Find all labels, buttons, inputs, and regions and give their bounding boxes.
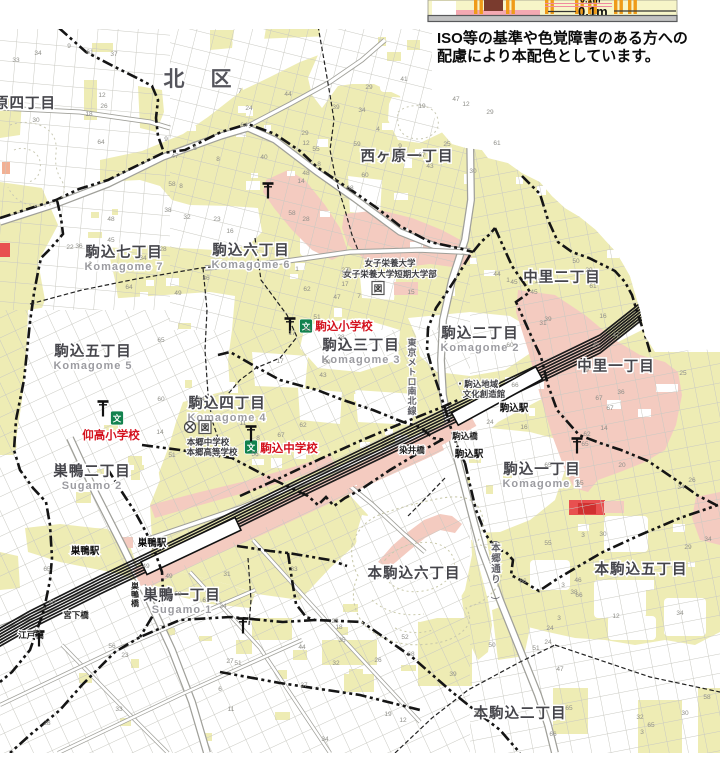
- svg-text:12: 12: [612, 613, 620, 620]
- svg-text:65: 65: [157, 337, 165, 344]
- svg-text:66: 66: [519, 578, 527, 585]
- svg-text:京: 京: [407, 347, 416, 358]
- svg-text:8: 8: [317, 161, 321, 168]
- svg-text:16: 16: [520, 424, 528, 431]
- svg-text:29: 29: [684, 544, 692, 551]
- svg-text:60: 60: [157, 396, 165, 403]
- svg-text:9: 9: [67, 43, 71, 50]
- svg-text:50: 50: [488, 642, 496, 649]
- svg-text:29: 29: [486, 109, 494, 116]
- svg-text:8: 8: [179, 183, 183, 190]
- svg-text:62: 62: [299, 422, 307, 429]
- svg-text:本郷高等学校: 本郷高等学校: [186, 447, 238, 457]
- svg-text:ISO等の基準や色覚障害のある方への: ISO等の基準や色覚障害のある方への: [437, 29, 688, 47]
- svg-text:65: 65: [581, 441, 589, 448]
- svg-text:60: 60: [506, 342, 514, 349]
- svg-text:Komagome 3: Komagome 3: [321, 354, 400, 366]
- svg-text:55: 55: [312, 146, 320, 153]
- svg-text:36: 36: [617, 389, 625, 396]
- svg-text:58: 58: [703, 694, 711, 701]
- svg-text:52: 52: [401, 634, 409, 641]
- svg-text:(: (: [491, 541, 501, 544]
- svg-text:24: 24: [245, 105, 253, 112]
- svg-text:文化創造館: 文化創造館: [463, 389, 506, 399]
- svg-text:47: 47: [171, 153, 179, 160]
- svg-text:12: 12: [302, 140, 310, 147]
- svg-text:33: 33: [115, 706, 123, 713]
- svg-text:19: 19: [418, 103, 426, 110]
- svg-text:9: 9: [398, 143, 402, 150]
- svg-text:50: 50: [572, 258, 580, 265]
- svg-text:30: 30: [469, 168, 477, 175]
- svg-text:61: 61: [86, 49, 94, 56]
- svg-text:39: 39: [332, 104, 340, 111]
- svg-text:45: 45: [530, 289, 538, 296]
- svg-text:25: 25: [443, 141, 451, 148]
- svg-text:29: 29: [301, 130, 309, 137]
- svg-text:29: 29: [365, 84, 373, 91]
- svg-text:43: 43: [319, 372, 327, 379]
- svg-text:45: 45: [510, 279, 518, 286]
- svg-text:12: 12: [98, 92, 106, 99]
- svg-text:30: 30: [32, 117, 40, 124]
- svg-text:61: 61: [493, 140, 501, 147]
- svg-text:駒込三丁目: 駒込三丁目: [322, 336, 400, 354]
- svg-text:17: 17: [276, 358, 284, 365]
- svg-text:15: 15: [407, 289, 415, 296]
- svg-text:0.1m: 0.1m: [580, 0, 601, 5]
- svg-text:駒込中学校: 駒込中学校: [260, 441, 318, 455]
- svg-text:巣鴨二丁目: 巣鴨二丁目: [52, 462, 131, 480]
- svg-text:49: 49: [174, 290, 182, 297]
- svg-text:西ヶ原一丁目: 西ヶ原一丁目: [361, 148, 454, 165]
- svg-text:68: 68: [346, 185, 354, 192]
- svg-text:線: 線: [407, 405, 416, 416]
- svg-text:東: 東: [407, 337, 416, 348]
- svg-text:65: 65: [544, 462, 552, 469]
- svg-text:65: 65: [43, 566, 51, 573]
- svg-text:34: 34: [677, 484, 685, 491]
- svg-text:3: 3: [561, 582, 565, 589]
- svg-text:本: 本: [491, 542, 501, 554]
- svg-text:48: 48: [107, 216, 115, 223]
- svg-text:62: 62: [583, 431, 591, 438]
- svg-text:24: 24: [546, 625, 554, 632]
- svg-text:・駒込地域: ・駒込地域: [456, 379, 499, 389]
- svg-text:34: 34: [321, 736, 329, 743]
- svg-text:61: 61: [202, 597, 210, 604]
- svg-text:仰高小学校: 仰高小学校: [82, 428, 140, 442]
- svg-text:47: 47: [612, 332, 620, 339]
- svg-text:2: 2: [88, 261, 92, 268]
- svg-text:16: 16: [599, 313, 607, 320]
- svg-text:46: 46: [574, 577, 582, 584]
- svg-text:65: 65: [647, 722, 655, 729]
- svg-text:51: 51: [313, 314, 321, 321]
- svg-text:29: 29: [585, 267, 593, 274]
- svg-text:64: 64: [240, 122, 248, 129]
- svg-text:原四丁目: 原四丁目: [0, 95, 56, 112]
- svg-text:7: 7: [238, 88, 242, 95]
- svg-text:14: 14: [600, 425, 608, 432]
- svg-text:本郷中学校: 本郷中学校: [187, 437, 230, 447]
- svg-text:通: 通: [491, 564, 501, 575]
- svg-text:47: 47: [333, 294, 341, 301]
- svg-text:60: 60: [361, 172, 369, 179]
- svg-text:64: 64: [125, 284, 133, 291]
- svg-text:12: 12: [399, 717, 407, 724]
- svg-text:59: 59: [353, 141, 361, 148]
- svg-text:駒込駅: 駒込駅: [454, 448, 484, 460]
- svg-text:駒込二丁目: 駒込二丁目: [441, 324, 519, 342]
- svg-text:区: 区: [211, 68, 232, 91]
- svg-text:本駒込六丁目: 本駒込六丁目: [368, 564, 461, 582]
- svg-text:12: 12: [462, 101, 470, 108]
- svg-text:56: 56: [108, 643, 116, 650]
- svg-text:36: 36: [75, 243, 83, 250]
- svg-text:Komagome 5: Komagome 5: [53, 360, 132, 372]
- svg-text:本駒込五丁目: 本駒込五丁目: [595, 560, 688, 578]
- svg-text:本駒込二丁目: 本駒込二丁目: [474, 704, 567, 722]
- svg-text:6: 6: [218, 686, 222, 693]
- svg-text:9: 9: [585, 367, 589, 374]
- svg-text:51: 51: [168, 452, 176, 459]
- svg-text:染井橋: 染井橋: [398, 445, 425, 455]
- svg-text:31: 31: [223, 571, 231, 578]
- svg-text:58: 58: [288, 210, 296, 217]
- svg-text:6: 6: [193, 145, 197, 152]
- svg-text:34: 34: [197, 396, 205, 403]
- svg-text:巣: 巣: [130, 581, 139, 591]
- svg-text:4: 4: [376, 126, 380, 133]
- svg-text:43: 43: [426, 163, 434, 170]
- svg-text:9: 9: [164, 136, 168, 143]
- svg-text:62: 62: [303, 286, 311, 293]
- svg-text:3: 3: [581, 532, 585, 539]
- svg-text:45: 45: [107, 237, 115, 244]
- svg-text:北: 北: [164, 68, 185, 91]
- svg-text:8: 8: [256, 435, 260, 442]
- svg-text:43: 43: [33, 628, 41, 635]
- svg-text:配慮により本配色としています。: 配慮により本配色としています。: [437, 47, 660, 65]
- svg-text:メ: メ: [407, 357, 416, 367]
- svg-text:38: 38: [164, 207, 172, 214]
- svg-text:18: 18: [85, 111, 93, 118]
- svg-text:文: 文: [113, 413, 122, 423]
- svg-text:59: 59: [323, 359, 331, 366]
- svg-text:11: 11: [228, 706, 235, 713]
- svg-text:33: 33: [341, 272, 349, 279]
- svg-text:16: 16: [226, 228, 234, 235]
- svg-text:4: 4: [401, 151, 405, 158]
- svg-text:41: 41: [400, 76, 408, 83]
- svg-text:駒込六丁目: 駒込六丁目: [212, 241, 290, 259]
- svg-text:32: 32: [183, 214, 191, 221]
- svg-text:7: 7: [159, 625, 163, 632]
- svg-text:14: 14: [297, 178, 305, 185]
- svg-text:67: 67: [277, 432, 285, 439]
- svg-text:北: 北: [407, 395, 416, 406]
- svg-text:女子栄養大学: 女子栄養大学: [364, 258, 416, 268]
- svg-text:68: 68: [407, 651, 415, 658]
- svg-text:26: 26: [100, 103, 108, 110]
- svg-text:55: 55: [544, 540, 552, 547]
- svg-text:44: 44: [493, 271, 501, 278]
- svg-text:47: 47: [556, 666, 564, 673]
- svg-text:40: 40: [260, 154, 268, 161]
- svg-text:橋: 橋: [131, 598, 140, 608]
- svg-text:39: 39: [449, 671, 457, 678]
- svg-text:中里一丁目: 中里一丁目: [577, 357, 655, 375]
- svg-text:34: 34: [676, 610, 684, 617]
- svg-text:66: 66: [575, 592, 583, 599]
- svg-text:37: 37: [300, 682, 308, 689]
- svg-text:): ): [491, 597, 501, 600]
- svg-text:33: 33: [290, 566, 298, 573]
- svg-text:1: 1: [506, 277, 510, 284]
- svg-text:32: 32: [636, 714, 644, 721]
- svg-text:11: 11: [240, 420, 247, 427]
- svg-text:67: 67: [595, 395, 603, 402]
- svg-text:40: 40: [48, 599, 56, 606]
- svg-text:37: 37: [110, 51, 118, 58]
- svg-text:34: 34: [704, 536, 712, 543]
- svg-text:宮下橋: 宮下橋: [63, 610, 89, 620]
- svg-text:18: 18: [335, 624, 343, 631]
- svg-text:26: 26: [688, 477, 696, 484]
- svg-text:駒込小学校: 駒込小学校: [315, 319, 373, 333]
- svg-text:駒込駅: 駒込駅: [499, 402, 529, 414]
- svg-text:17: 17: [341, 281, 349, 288]
- svg-text:図: 図: [374, 283, 383, 293]
- svg-text:28: 28: [337, 334, 345, 341]
- svg-text:14: 14: [156, 429, 164, 436]
- svg-text:28: 28: [302, 216, 310, 223]
- svg-text:61: 61: [304, 326, 312, 333]
- svg-text:58: 58: [174, 591, 182, 598]
- svg-text:33: 33: [12, 57, 20, 64]
- svg-text:30: 30: [599, 531, 607, 538]
- svg-text:47: 47: [452, 96, 460, 103]
- svg-text:34: 34: [139, 255, 147, 262]
- svg-text:駒込七丁目: 駒込七丁目: [85, 243, 163, 261]
- svg-text:1: 1: [295, 266, 299, 273]
- svg-text:30: 30: [681, 710, 689, 717]
- svg-text:駒込橋: 駒込橋: [451, 431, 478, 441]
- svg-text:鴨: 鴨: [131, 590, 139, 600]
- svg-text:図: 図: [201, 422, 210, 432]
- svg-text:り: り: [491, 575, 501, 586]
- svg-text:23: 23: [121, 652, 129, 659]
- svg-text:20: 20: [591, 342, 599, 349]
- svg-text:女子栄養大学短期大学部: 女子栄養大学短期大学部: [343, 269, 437, 279]
- svg-text:19: 19: [384, 711, 392, 718]
- svg-text:3: 3: [557, 615, 561, 622]
- svg-text:Komagome 7: Komagome 7: [84, 261, 163, 273]
- svg-text:66: 66: [511, 382, 519, 389]
- svg-text:49: 49: [142, 563, 150, 570]
- svg-text:Sugamo 1: Sugamo 1: [152, 604, 213, 616]
- svg-text:17: 17: [288, 330, 296, 337]
- svg-text:23: 23: [213, 216, 221, 223]
- svg-text:58: 58: [168, 181, 176, 188]
- svg-text:3: 3: [640, 729, 644, 736]
- svg-text:67: 67: [418, 152, 426, 159]
- svg-text:44: 44: [284, 91, 292, 98]
- svg-text:65: 65: [576, 480, 584, 487]
- svg-text:51: 51: [532, 645, 540, 652]
- svg-text:8: 8: [216, 156, 220, 163]
- svg-text:48: 48: [302, 170, 310, 177]
- svg-text:巣鴨駅: 巣鴨駅: [70, 545, 100, 557]
- svg-text:36: 36: [202, 275, 210, 282]
- svg-text:28: 28: [159, 246, 167, 253]
- svg-text:39: 39: [544, 316, 552, 323]
- svg-text:64: 64: [475, 710, 483, 717]
- svg-text:22: 22: [66, 244, 74, 251]
- svg-text:35: 35: [338, 637, 346, 644]
- svg-text:巣鴨駅: 巣鴨駅: [137, 537, 167, 549]
- svg-text:Komagome 6: Komagome 6: [211, 259, 290, 271]
- svg-text:ト: ト: [407, 367, 416, 377]
- svg-text:27: 27: [226, 658, 234, 665]
- svg-text:南: 南: [407, 386, 416, 397]
- svg-text:32: 32: [332, 660, 340, 667]
- svg-text:61: 61: [589, 283, 597, 290]
- svg-text:65: 65: [565, 705, 573, 712]
- svg-text:20: 20: [618, 462, 626, 469]
- svg-text:34: 34: [219, 603, 227, 610]
- svg-text:Sugamo 2: Sugamo 2: [62, 480, 123, 492]
- svg-text:Komagome 1: Komagome 1: [502, 478, 581, 490]
- svg-text:25: 25: [679, 370, 687, 377]
- svg-text:郷: 郷: [491, 553, 501, 565]
- svg-text:34: 34: [34, 50, 42, 57]
- svg-text:7: 7: [357, 293, 361, 300]
- svg-text:34: 34: [358, 107, 366, 114]
- svg-text:11: 11: [535, 278, 542, 285]
- svg-text:44: 44: [298, 644, 306, 651]
- svg-text:49: 49: [165, 573, 173, 580]
- svg-text:56: 56: [251, 451, 259, 458]
- svg-text:駒込五丁目: 駒込五丁目: [54, 342, 132, 360]
- svg-text:ロ: ロ: [407, 377, 416, 387]
- svg-text:28: 28: [43, 720, 51, 727]
- svg-text:駒込一丁目: 駒込一丁目: [503, 460, 581, 478]
- svg-text:51: 51: [234, 660, 242, 667]
- svg-text:66: 66: [549, 731, 557, 738]
- svg-text:64: 64: [97, 139, 105, 146]
- svg-text:67: 67: [606, 405, 614, 412]
- svg-text:24: 24: [544, 639, 552, 646]
- svg-text:26: 26: [374, 657, 382, 664]
- svg-text:24: 24: [486, 419, 494, 426]
